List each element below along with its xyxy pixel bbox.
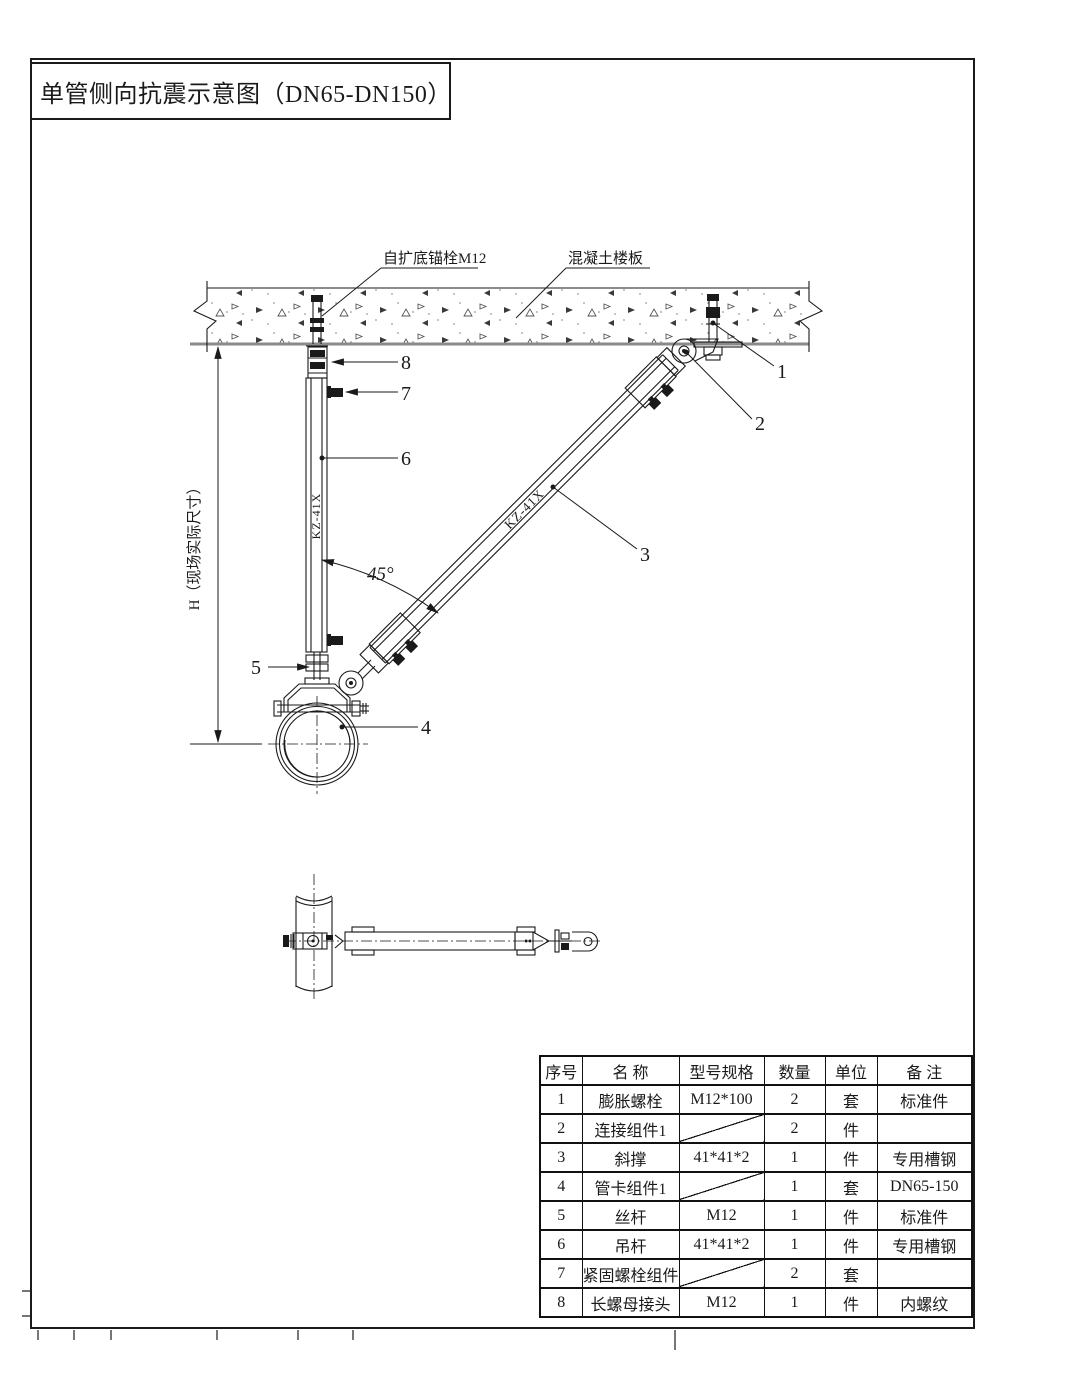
bom-cell-unit: 套 xyxy=(825,1259,877,1288)
drawing-sheet: KZ-41X xyxy=(0,0,1071,1386)
bom-cell-name: 膨胀螺栓 xyxy=(582,1085,679,1114)
bom-cell-note: 专用槽钢 xyxy=(877,1230,972,1259)
bom-cell-unit: 件 xyxy=(825,1114,877,1143)
bom-cell-no: 2 xyxy=(540,1114,582,1143)
bom-row: 1 膨胀螺栓 M12*100 2 套 标准件 xyxy=(540,1085,972,1114)
bom-cell-name: 斜撑 xyxy=(582,1143,679,1172)
bom-row: 8 长螺母接头 M12 1 件 内螺纹 xyxy=(540,1288,972,1317)
bom-cell-unit: 件 xyxy=(825,1201,877,1230)
bom-cell-qty: 1 xyxy=(764,1288,825,1317)
bom-cell-note: 标准件 xyxy=(877,1201,972,1230)
bom-cell-qty: 1 xyxy=(764,1172,825,1201)
bom-cell-name: 长螺母接头 xyxy=(582,1288,679,1317)
bom-header-row: 序号 名 称 型号规格 数量 单位 备 注 xyxy=(540,1056,972,1085)
bom-cell-name: 丝杆 xyxy=(582,1201,679,1230)
bom-row: 7 紧固螺栓组件 2 套 xyxy=(540,1259,972,1288)
bom-cell-qty: 1 xyxy=(764,1143,825,1172)
bom-cell-qty: 2 xyxy=(764,1114,825,1143)
bom-header-name: 名 称 xyxy=(582,1056,679,1085)
bom-cell-unit: 套 xyxy=(825,1085,877,1114)
bom-header-note: 备 注 xyxy=(877,1056,972,1085)
bom-cell-no: 4 xyxy=(540,1172,582,1201)
bom-cell-name: 管卡组件1 xyxy=(582,1172,679,1201)
bom-cell-name: 连接组件1 xyxy=(582,1114,679,1143)
bom-row: 3 斜撑 41*41*2 1 件 专用槽钢 xyxy=(540,1143,972,1172)
bom-row: 6 吊杆 41*41*2 1 件 专用槽钢 xyxy=(540,1230,972,1259)
bom-cell-note: 标准件 xyxy=(877,1085,972,1114)
bom-cell-note: 专用槽钢 xyxy=(877,1143,972,1172)
bom-cell-name: 紧固螺栓组件 xyxy=(582,1259,679,1288)
bom-cell-qty: 1 xyxy=(764,1201,825,1230)
bom-cell-note xyxy=(877,1259,972,1288)
bom-row: 4 管卡组件1 1 套 DN65-150 xyxy=(540,1172,972,1201)
bom-header-spec: 型号规格 xyxy=(679,1056,764,1085)
bom-cell-qty: 2 xyxy=(764,1259,825,1288)
bom-row: 5 丝杆 M12 1 件 标准件 xyxy=(540,1201,972,1230)
bom-header-qty: 数量 xyxy=(764,1056,825,1085)
bom-cell-qty: 2 xyxy=(764,1085,825,1114)
bom-cell-unit: 件 xyxy=(825,1288,877,1317)
bom-cell-note xyxy=(877,1114,972,1143)
bom-cell-note: 内螺纹 xyxy=(877,1288,972,1317)
bom-cell-spec: M12 xyxy=(679,1201,764,1230)
bom-cell-no: 1 xyxy=(540,1085,582,1114)
title-block: 单管侧向抗震示意图（DN65-DN150） xyxy=(30,62,451,120)
bom-cell-spec: 41*41*2 xyxy=(679,1230,764,1259)
drawing-title: 单管侧向抗震示意图（DN65-DN150） xyxy=(40,74,452,109)
bom-cell-qty: 1 xyxy=(764,1230,825,1259)
bom-cell-unit: 件 xyxy=(825,1143,877,1172)
bom-cell-name: 吊杆 xyxy=(582,1230,679,1259)
bom-cell-note: DN65-150 xyxy=(877,1172,972,1201)
bom-cell-no: 8 xyxy=(540,1288,582,1317)
bom-cell-spec xyxy=(679,1259,764,1288)
bom-cell-spec: M12 xyxy=(679,1288,764,1317)
bom-cell-unit: 件 xyxy=(825,1230,877,1259)
bom-cell-spec: 41*41*2 xyxy=(679,1143,764,1172)
bom-cell-no: 3 xyxy=(540,1143,582,1172)
bom-cell-no: 5 xyxy=(540,1201,582,1230)
bom-cell-no: 7 xyxy=(540,1259,582,1288)
bom-row: 2 连接组件1 2 件 xyxy=(540,1114,972,1143)
bom-cell-no: 6 xyxy=(540,1230,582,1259)
bom-cell-unit: 套 xyxy=(825,1172,877,1201)
bom-cell-spec: M12*100 xyxy=(679,1085,764,1114)
bom-header-unit: 单位 xyxy=(825,1056,877,1085)
bom-header-no: 序号 xyxy=(540,1056,582,1085)
bom-table: 序号 名 称 型号规格 数量 单位 备 注 1 膨胀螺栓 M12*100 2 套… xyxy=(539,1055,973,1318)
bom-cell-spec xyxy=(679,1172,764,1201)
bom-cell-spec xyxy=(679,1114,764,1143)
